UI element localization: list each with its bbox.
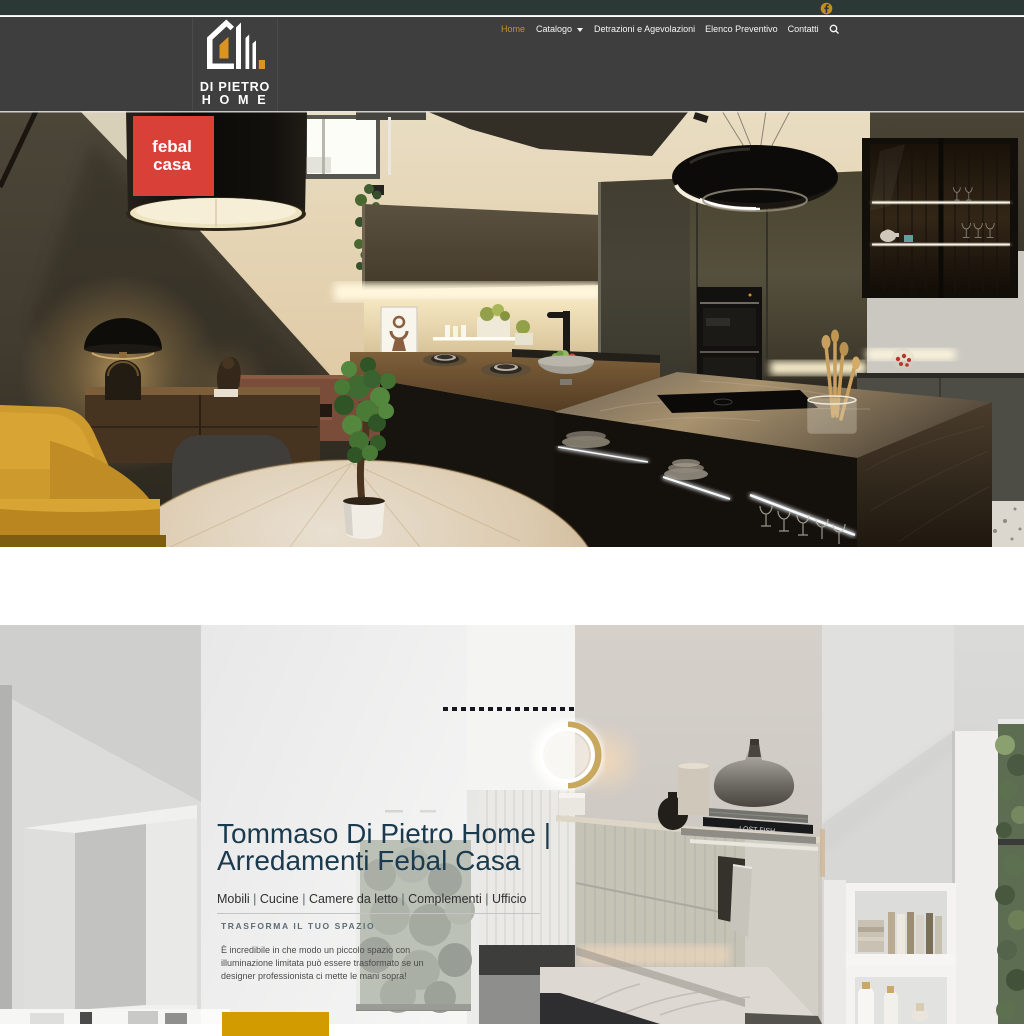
svg-text:DI PIETRO: DI PIETRO xyxy=(200,80,270,94)
svg-text:casa: casa xyxy=(153,155,191,174)
svg-text:H O M E: H O M E xyxy=(202,93,268,107)
svg-text:febal: febal xyxy=(152,137,192,156)
